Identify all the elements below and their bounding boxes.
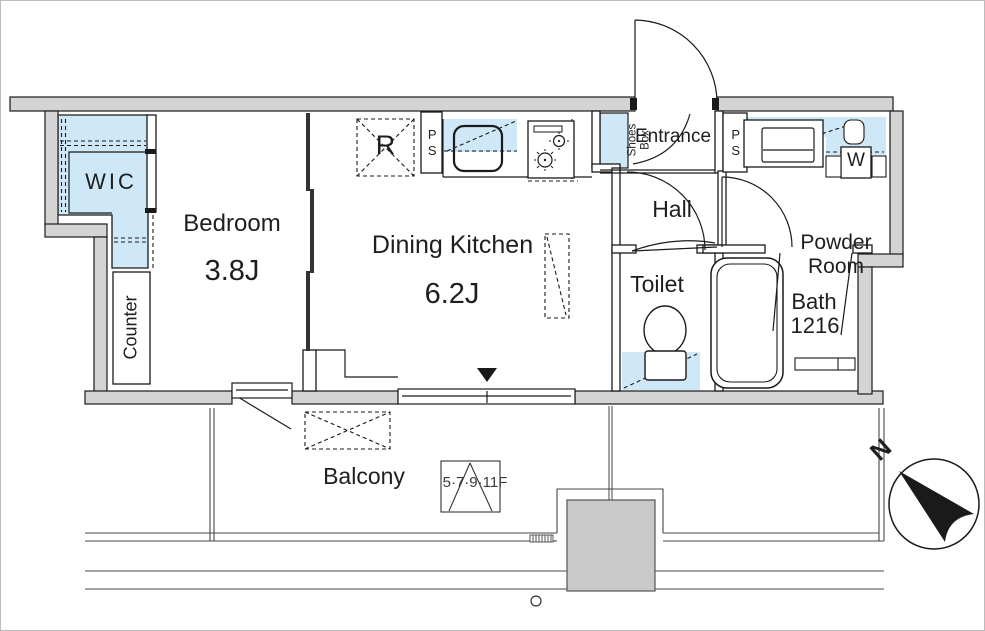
dining-kitchen-label: Dining Kitchen	[330, 231, 575, 259]
bath-label: Bath	[779, 290, 849, 315]
wic-label: WIC	[72, 170, 150, 195]
drain-circle	[531, 596, 541, 606]
toilet-label: Toilet	[607, 272, 707, 298]
pipe-shaft	[557, 406, 663, 591]
hall-label: Hall	[622, 197, 722, 223]
compass	[889, 459, 979, 549]
entrance-label: Entrance	[626, 126, 720, 147]
pipe-space-2-label: PS	[723, 115, 747, 171]
balcony-label: Balcony	[314, 464, 414, 490]
stove	[528, 121, 574, 178]
bedroom-label: Bedroom	[158, 211, 306, 238]
bedroom-balcony-door-swing	[238, 397, 291, 429]
dining-kitchen-area-label: 6.2J	[392, 278, 512, 310]
floor-access-label: 5·7·9·11F	[420, 475, 530, 492]
bathtub	[711, 258, 783, 388]
entrance-door-arc	[635, 20, 717, 103]
vanity-basin	[762, 128, 814, 162]
drain-grate	[530, 535, 553, 542]
balcony-lines	[85, 408, 884, 589]
bath-size-label: 1216	[777, 314, 853, 339]
toilet-fixture	[644, 306, 686, 380]
pipe-shaft-box	[567, 500, 655, 591]
windows	[232, 383, 575, 404]
powder-room-label-line1: Powder	[778, 231, 894, 255]
washing-machine-label: W	[841, 150, 871, 171]
washer-faucet	[844, 120, 864, 144]
entry-direction-triangle	[477, 368, 497, 382]
counter-label: Counter	[113, 272, 150, 384]
refrigerator-label: R	[357, 130, 414, 160]
compass-needle	[899, 471, 974, 542]
sliding-partition	[306, 113, 314, 351]
bedroom-area-label: 3.8J	[158, 255, 306, 287]
powder-room-label-line2: Room	[778, 255, 894, 279]
pipe-space-1-label: PS	[421, 114, 442, 172]
floor-plan: WIC Bedroom 3.8J Counter Dining Kitchen …	[0, 0, 985, 631]
bath-counter	[795, 358, 855, 370]
